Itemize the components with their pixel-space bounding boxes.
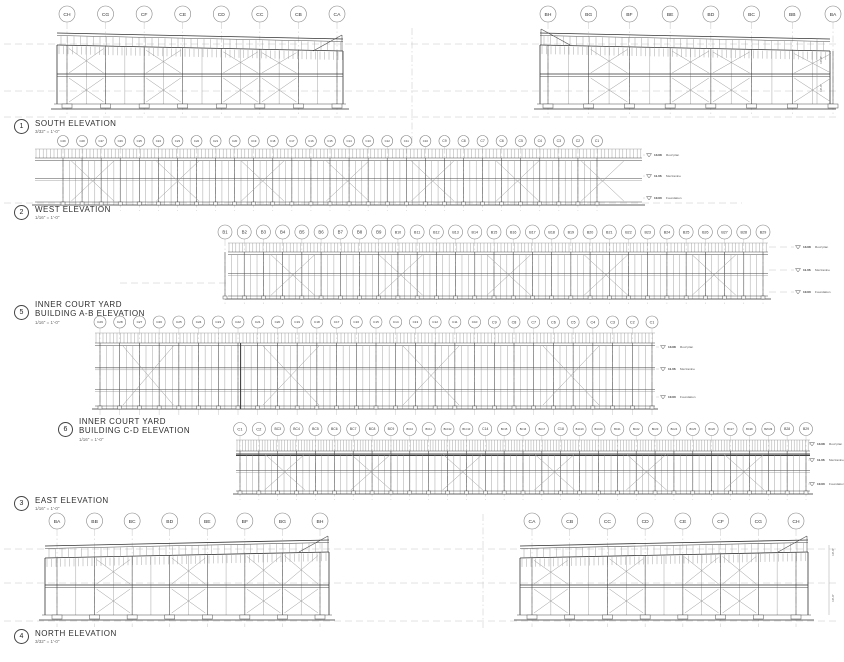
svg-text:Mezzanine: Mezzanine — [829, 458, 844, 462]
svg-text:BA: BA — [54, 519, 61, 525]
view-title-label2: BUILDING A-B ELEVATION — [35, 309, 145, 318]
svg-text:B27: B27 — [721, 230, 727, 234]
svg-text:11.06: 11.06 — [654, 174, 662, 178]
svg-text:C1: C1 — [237, 426, 243, 431]
svg-text:Roof plan: Roof plan — [815, 245, 829, 249]
svg-text:BF: BF — [242, 519, 248, 525]
view-scale: 3/32" = 1'-0" — [35, 129, 116, 134]
svg-text:C15: C15 — [373, 320, 379, 324]
svg-text:10.00: 10.00 — [668, 395, 676, 399]
view-title-label: INNER COURT YARD — [35, 300, 145, 309]
elevation-inner-court-yard-cd: C29C28C27C26C25C24C23C22C21C20C19C18C17C… — [92, 316, 696, 415]
svg-text:B9: B9 — [376, 230, 382, 235]
view-title-inner-court-yard-ab: 5 INNER COURT YARD BUILDING A-B ELEVATIO… — [14, 300, 145, 325]
svg-text:11.06: 11.06 — [668, 367, 676, 371]
svg-text:BF: BF — [626, 12, 632, 18]
svg-text:CC: CC — [256, 12, 264, 18]
svg-text:B5: B5 — [299, 230, 305, 235]
elevation-inner-court-yard-ab: B1B2B3B4B5B6B7B8B9B10B11B12B13B14B15B16B… — [218, 225, 831, 305]
svg-text:C26: C26 — [118, 139, 124, 143]
svg-text:B11: B11 — [414, 230, 420, 234]
svg-text:BC15: BC15 — [501, 427, 508, 431]
svg-text:C27: C27 — [99, 139, 105, 143]
svg-text:C13: C13 — [366, 139, 372, 143]
svg-text:BC: BC — [129, 519, 136, 525]
svg-text:BC9: BC9 — [388, 427, 395, 431]
svg-text:B6: B6 — [318, 230, 324, 235]
svg-text:10'-0": 10'-0" — [831, 594, 835, 602]
svg-text:B14: B14 — [472, 230, 478, 234]
svg-text:C26: C26 — [156, 320, 162, 324]
svg-text:CD: CD — [218, 12, 226, 18]
svg-text:BC: BC — [748, 12, 755, 18]
svg-text:BC5: BC5 — [312, 427, 319, 431]
svg-text:B13: B13 — [452, 230, 458, 234]
svg-text:C6: C6 — [499, 139, 503, 143]
svg-text:Roof plan: Roof plan — [829, 442, 843, 446]
svg-text:C9: C9 — [492, 320, 497, 324]
svg-text:C23: C23 — [175, 139, 181, 143]
svg-text:B17: B17 — [529, 230, 535, 234]
svg-text:C22: C22 — [194, 139, 200, 143]
svg-text:C5: C5 — [519, 139, 523, 143]
svg-text:C8: C8 — [512, 320, 517, 324]
view-title-label2: BUILDING C-D ELEVATION — [79, 426, 190, 435]
svg-text:B3: B3 — [261, 230, 267, 235]
svg-text:C19: C19 — [251, 139, 257, 143]
svg-text:BH: BH — [545, 12, 552, 18]
svg-text:B1C12: B1C12 — [444, 427, 452, 431]
svg-text:10'-0": 10'-0" — [819, 56, 823, 64]
svg-text:BC26: BC26 — [708, 427, 715, 431]
svg-text:C21: C21 — [255, 320, 261, 324]
svg-text:CG: CG — [755, 519, 763, 525]
svg-text:BC22: BC22 — [633, 427, 640, 431]
svg-text:CG: CG — [102, 12, 110, 18]
svg-text:BG: BG — [585, 12, 592, 18]
svg-text:C23: C23 — [215, 320, 221, 324]
svg-text:C8: C8 — [461, 139, 465, 143]
svg-text:B23: B23 — [644, 230, 650, 234]
svg-text:C15: C15 — [327, 139, 333, 143]
svg-text:C10: C10 — [423, 139, 429, 143]
elevation-south-building-c: CHCGCFCECDCCCBCA — [51, 6, 349, 116]
view-title-label: EAST ELEVATION — [35, 496, 109, 505]
view-title-north-elevation: 4 NORTH ELEVATION 3/32" = 1'-0" — [14, 629, 117, 644]
svg-text:B28: B28 — [741, 230, 747, 234]
svg-text:Mezzanine: Mezzanine — [680, 367, 695, 371]
svg-text:10.00: 10.00 — [803, 290, 811, 294]
svg-text:B18: B18 — [548, 230, 554, 234]
svg-text:CE: CE — [179, 12, 187, 18]
svg-text:B1C20: B1C20 — [594, 427, 602, 431]
view-number-badge: 3 — [14, 496, 29, 511]
view-scale: 1/16" = 1'-0" — [35, 215, 111, 220]
svg-text:C24: C24 — [156, 139, 162, 143]
svg-text:BC24: BC24 — [671, 427, 678, 431]
svg-text:B2: B2 — [242, 230, 248, 235]
view-scale: 1/16" = 1'-0" — [79, 437, 190, 442]
svg-text:BC7: BC7 — [350, 427, 357, 431]
svg-text:11.06: 11.06 — [803, 268, 811, 272]
svg-text:C18: C18 — [558, 427, 564, 431]
view-scale: 1/16" = 1'-0" — [35, 320, 145, 325]
svg-text:BC27: BC27 — [727, 427, 734, 431]
svg-text:B28: B28 — [784, 427, 790, 431]
svg-text:B15: B15 — [491, 230, 497, 234]
svg-text:B16: B16 — [510, 230, 516, 234]
svg-text:C3: C3 — [557, 139, 561, 143]
svg-text:B21: B21 — [606, 230, 612, 234]
view-title-label: NORTH ELEVATION — [35, 629, 117, 638]
svg-text:C12: C12 — [385, 139, 391, 143]
svg-text:BB: BB — [789, 12, 796, 18]
svg-text:BC16: BC16 — [520, 427, 527, 431]
svg-text:13.08: 13.08 — [654, 153, 662, 157]
view-title-east-elevation: 3 EAST ELEVATION 1/16" = 1'-0" — [14, 496, 109, 511]
svg-text:C28: C28 — [79, 139, 85, 143]
view-title-south-elevation: 1 SOUTH ELEVATION 3/32" = 1'-0" — [14, 119, 116, 134]
svg-text:C3: C3 — [610, 320, 615, 324]
svg-text:Foundation: Foundation — [680, 395, 696, 399]
svg-text:C5: C5 — [571, 320, 576, 324]
view-scale: 1/16" = 1'-0" — [35, 506, 109, 511]
svg-text:C12: C12 — [432, 320, 438, 324]
svg-text:C11: C11 — [404, 139, 409, 143]
svg-text:C17: C17 — [289, 139, 295, 143]
svg-text:CA: CA — [529, 519, 537, 525]
svg-text:C29: C29 — [60, 139, 66, 143]
svg-text:C2: C2 — [630, 320, 635, 324]
svg-text:B29: B29 — [803, 427, 809, 431]
svg-text:B1C13: B1C13 — [462, 427, 470, 431]
svg-text:BB: BB — [91, 519, 98, 525]
view-number-badge: 4 — [14, 629, 29, 644]
svg-text:BC11: BC11 — [426, 427, 433, 431]
svg-text:C21: C21 — [213, 139, 219, 143]
svg-text:10.00: 10.00 — [817, 482, 825, 486]
svg-text:CC: CC — [604, 519, 612, 525]
svg-text:C2: C2 — [256, 426, 262, 431]
svg-text:BC21: BC21 — [614, 427, 621, 431]
svg-text:Mezzanine: Mezzanine — [666, 174, 681, 178]
svg-text:BC4: BC4 — [293, 427, 300, 431]
svg-text:C7: C7 — [531, 320, 536, 324]
svg-text:B7: B7 — [338, 230, 344, 235]
svg-text:CH: CH — [792, 519, 800, 525]
view-title-label: INNER COURT YARD — [79, 417, 190, 426]
view-number-badge: 6 — [58, 422, 73, 437]
svg-text:BC8: BC8 — [369, 427, 376, 431]
svg-text:Foundation: Foundation — [829, 482, 844, 486]
svg-text:B29: B29 — [760, 230, 766, 234]
svg-text:Mezzanine: Mezzanine — [815, 268, 830, 272]
svg-text:C25: C25 — [176, 320, 182, 324]
view-number-badge: 1 — [14, 119, 29, 134]
view-title-west-elevation: 2 WEST ELEVATION 1/16" = 1'-0" — [14, 205, 111, 220]
svg-text:C18: C18 — [314, 320, 320, 324]
svg-text:B22: B22 — [625, 230, 631, 234]
elevations-canvas: CHCGCFCECDCCCBCABHBGBFBEBDBCBBBA10'-0"10… — [0, 0, 844, 662]
svg-text:Roof plan: Roof plan — [680, 345, 694, 349]
svg-text:B1: B1 — [222, 230, 228, 235]
svg-text:10.00: 10.00 — [654, 196, 662, 200]
svg-text:C10: C10 — [472, 320, 478, 324]
svg-text:BH: BH — [317, 519, 324, 525]
svg-text:BE: BE — [204, 519, 211, 525]
svg-text:BD: BD — [166, 519, 173, 525]
elevation-west-elevation: C29C28C27C26C25C24C23C22C21C20C19C18C17C… — [32, 136, 682, 212]
svg-text:C11: C11 — [452, 320, 458, 324]
svg-text:B20: B20 — [587, 230, 593, 234]
view-title-label: SOUTH ELEVATION — [35, 119, 116, 128]
svg-text:C7: C7 — [480, 139, 484, 143]
svg-text:B1C19: B1C19 — [576, 427, 584, 431]
svg-text:CD: CD — [642, 519, 650, 525]
svg-text:BC23: BC23 — [652, 427, 659, 431]
svg-text:B4: B4 — [280, 230, 286, 235]
svg-text:BC10: BC10 — [407, 427, 414, 431]
svg-text:C6: C6 — [551, 320, 556, 324]
svg-text:C4: C4 — [538, 139, 542, 143]
svg-text:BD: BD — [707, 12, 714, 18]
svg-text:CB: CB — [295, 12, 303, 18]
svg-text:B19: B19 — [568, 230, 574, 234]
svg-text:C1: C1 — [595, 139, 599, 143]
svg-text:Foundation: Foundation — [815, 290, 831, 294]
svg-text:B24: B24 — [664, 230, 670, 234]
svg-text:B26: B26 — [702, 230, 708, 234]
svg-text:C25: C25 — [137, 139, 143, 143]
svg-text:CA: CA — [334, 12, 342, 18]
svg-text:C16: C16 — [308, 139, 314, 143]
svg-text:CH: CH — [63, 12, 71, 18]
view-title-inner-court-yard-cd: 6 INNER COURT YARD BUILDING C-D ELEVATIO… — [58, 417, 190, 442]
svg-text:C20: C20 — [232, 139, 238, 143]
svg-text:BC25: BC25 — [690, 427, 697, 431]
svg-text:C18: C18 — [270, 139, 276, 143]
svg-text:BC17: BC17 — [539, 427, 546, 431]
svg-text:C2: C2 — [576, 139, 580, 143]
svg-text:Roof plan: Roof plan — [666, 153, 680, 157]
elevation-east-elevation: C1C2BC3BC4BC5BC6BC7BC8BC9BC10BC11B1C12B1… — [233, 423, 844, 501]
svg-text:C19: C19 — [294, 320, 300, 324]
svg-text:C1: C1 — [650, 320, 655, 324]
svg-text:CB: CB — [566, 519, 574, 525]
view-scale: 3/32" = 1'-0" — [35, 639, 117, 644]
svg-text:B25: B25 — [683, 230, 689, 234]
svg-text:C24: C24 — [196, 320, 202, 324]
svg-text:BC6: BC6 — [331, 427, 338, 431]
svg-text:B2C29: B2C29 — [764, 427, 772, 431]
svg-text:C14: C14 — [482, 427, 488, 431]
svg-text:BG: BG — [279, 519, 286, 525]
svg-text:CF: CF — [141, 12, 148, 18]
svg-text:10'-0": 10'-0" — [819, 84, 823, 92]
svg-text:B12: B12 — [433, 230, 439, 234]
svg-text:C9: C9 — [442, 139, 446, 143]
svg-text:BA: BA — [830, 12, 837, 18]
svg-text:10'-0": 10'-0" — [831, 548, 835, 556]
svg-text:C16: C16 — [353, 320, 359, 324]
svg-text:Foundation: Foundation — [666, 196, 682, 200]
svg-text:B10: B10 — [395, 230, 401, 234]
svg-text:C4: C4 — [590, 320, 595, 324]
view-number-badge: 5 — [14, 305, 29, 320]
svg-text:BC28: BC28 — [746, 427, 753, 431]
svg-text:CF: CF — [717, 519, 724, 525]
svg-text:BE: BE — [667, 12, 674, 18]
svg-text:C20: C20 — [275, 320, 281, 324]
svg-text:13.08: 13.08 — [803, 245, 811, 249]
svg-text:11.06: 11.06 — [817, 458, 825, 462]
svg-text:C14: C14 — [393, 320, 399, 324]
svg-text:C17: C17 — [334, 320, 340, 324]
elevation-sheet: CHCGCFCECDCCCBCABHBGBFBEBDBCBBBA10'-0"10… — [0, 0, 844, 662]
view-title-label: WEST ELEVATION — [35, 205, 111, 214]
svg-text:CE: CE — [679, 519, 687, 525]
svg-text:C14: C14 — [346, 139, 352, 143]
svg-text:13.08: 13.08 — [668, 345, 676, 349]
svg-text:13.08: 13.08 — [817, 442, 825, 446]
svg-text:C22: C22 — [235, 320, 241, 324]
elevation-north-building-b: BABBBCBDBEBFBGBH — [39, 513, 335, 627]
elevation-south-building-b: BHBGBFBEBDBCBBBA10'-0"10'-0" — [534, 6, 841, 116]
svg-text:C13: C13 — [413, 320, 419, 324]
svg-text:B8: B8 — [357, 230, 363, 235]
elevation-north-building-c: CACBCCCDCECFCGCH10'-0"10'-0" — [514, 513, 835, 627]
view-number-badge: 2 — [14, 205, 29, 220]
svg-text:BC3: BC3 — [274, 427, 281, 431]
